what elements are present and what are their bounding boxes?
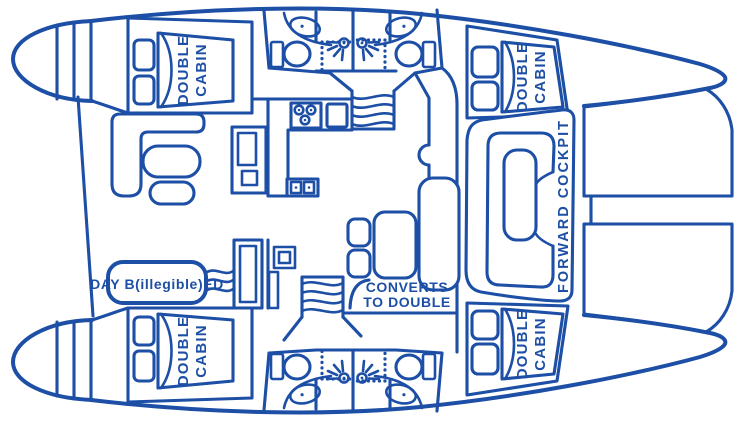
nav-cabinet: [232, 127, 266, 193]
pillow-icon: [134, 40, 154, 70]
pillow-icon: [472, 344, 498, 374]
cabin-label-line1: DOUBLE: [514, 309, 531, 380]
door-arc-icon: [419, 145, 429, 165]
dinette-label-line2: TO DOUBLE: [363, 294, 451, 310]
hull-starboard: [13, 308, 725, 412]
trampoline-mesh-upper: [584, 89, 732, 196]
toilet-icon: [271, 42, 310, 67]
cabin-label-line2: CABIN: [193, 43, 210, 97]
pillow-icon: [472, 47, 498, 77]
pillow-icon: [134, 76, 154, 104]
pillow-icon: [134, 351, 154, 381]
heads-starboard: [264, 350, 442, 411]
saloon-table: [143, 146, 200, 177]
stool: [150, 182, 194, 204]
cabin-forward-starboard: DOUBLE CABIN: [467, 303, 568, 395]
blanket-line: [161, 33, 172, 107]
stern-steps-port: [57, 21, 91, 101]
cabin-label-line2: CABIN: [532, 50, 549, 104]
shower-head-icon: [358, 361, 380, 383]
trampoline: [584, 89, 732, 332]
cabin-aft-starboard: DOUBLE CABIN: [128, 308, 252, 402]
cabin-aft-port: DOUBLE CABIN: [128, 18, 252, 113]
toilet-icon: [271, 354, 310, 379]
pillow-icon: [134, 317, 154, 345]
day-bed: DAY B(illegible)ED: [90, 262, 233, 303]
blanket-line: [161, 314, 172, 388]
catamaran-floor-plan-page: DOUBLE CABIN: [0, 0, 740, 421]
dinette-label-line1: CONVERTS: [366, 279, 449, 295]
cabin-label-line2: CABIN: [193, 324, 210, 378]
stern-steps-starboard: [57, 320, 91, 400]
cabin-label-line1: DOUBLE: [175, 35, 192, 106]
blanket-line: [505, 309, 514, 379]
pillow-icon: [472, 311, 498, 339]
forward-bench: [419, 178, 459, 290]
cabin-forward-port: DOUBLE CABIN: [467, 26, 568, 118]
toilet-icon: [396, 42, 435, 67]
forward-cockpit-label: FORWARD COCKPIT: [556, 119, 572, 293]
settee-area: [112, 114, 266, 204]
pillow-icon: [472, 82, 498, 110]
cabin-label-line2: CABIN: [532, 317, 549, 371]
toilet-icon: [396, 354, 435, 379]
heads-port: [264, 10, 442, 91]
stove-icon: [291, 103, 321, 128]
mid-cabinets: [234, 240, 295, 308]
dinette-table: [374, 212, 416, 278]
shower-head-icon: [358, 39, 380, 61]
cabin-label-line1: DOUBLE: [175, 316, 192, 387]
cabin-label-line1: DOUBLE: [514, 42, 531, 113]
galley-cabinet: [287, 179, 318, 196]
trampoline-mesh-lower: [584, 224, 732, 332]
dinette-seat: [348, 250, 370, 277]
stairs-port-icon: [352, 91, 394, 129]
forward-cockpit: FORWARD COCKPIT: [466, 110, 574, 301]
day-bed-label: DAY B(illegible)ED: [90, 276, 224, 292]
dinette-seat: [348, 219, 370, 246]
catamaran-floor-plan: DOUBLE CABIN: [0, 0, 740, 421]
blanket-line: [505, 42, 514, 112]
galley-sink-icon: [327, 104, 347, 127]
